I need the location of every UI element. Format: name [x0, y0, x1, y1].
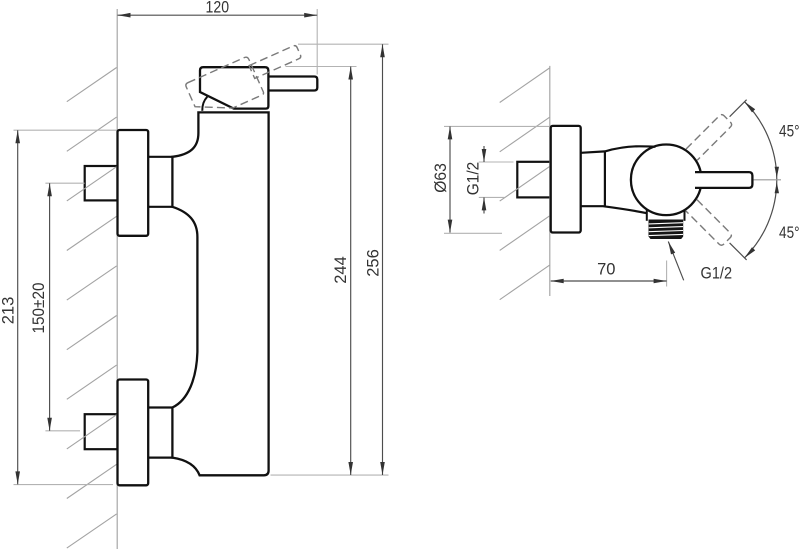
- svg-text:213: 213: [0, 297, 17, 325]
- svg-text:G1/2: G1/2: [701, 264, 733, 282]
- svg-text:244: 244: [332, 256, 350, 284]
- svg-text:45°: 45°: [779, 122, 800, 140]
- svg-text:120: 120: [206, 0, 230, 17]
- svg-text:256: 256: [364, 249, 382, 277]
- svg-text:45°: 45°: [779, 224, 800, 242]
- svg-text:150±20: 150±20: [30, 283, 48, 334]
- svg-text:G1/2: G1/2: [464, 162, 482, 196]
- svg-text:Ø63: Ø63: [432, 163, 450, 193]
- svg-text:70: 70: [597, 261, 615, 279]
